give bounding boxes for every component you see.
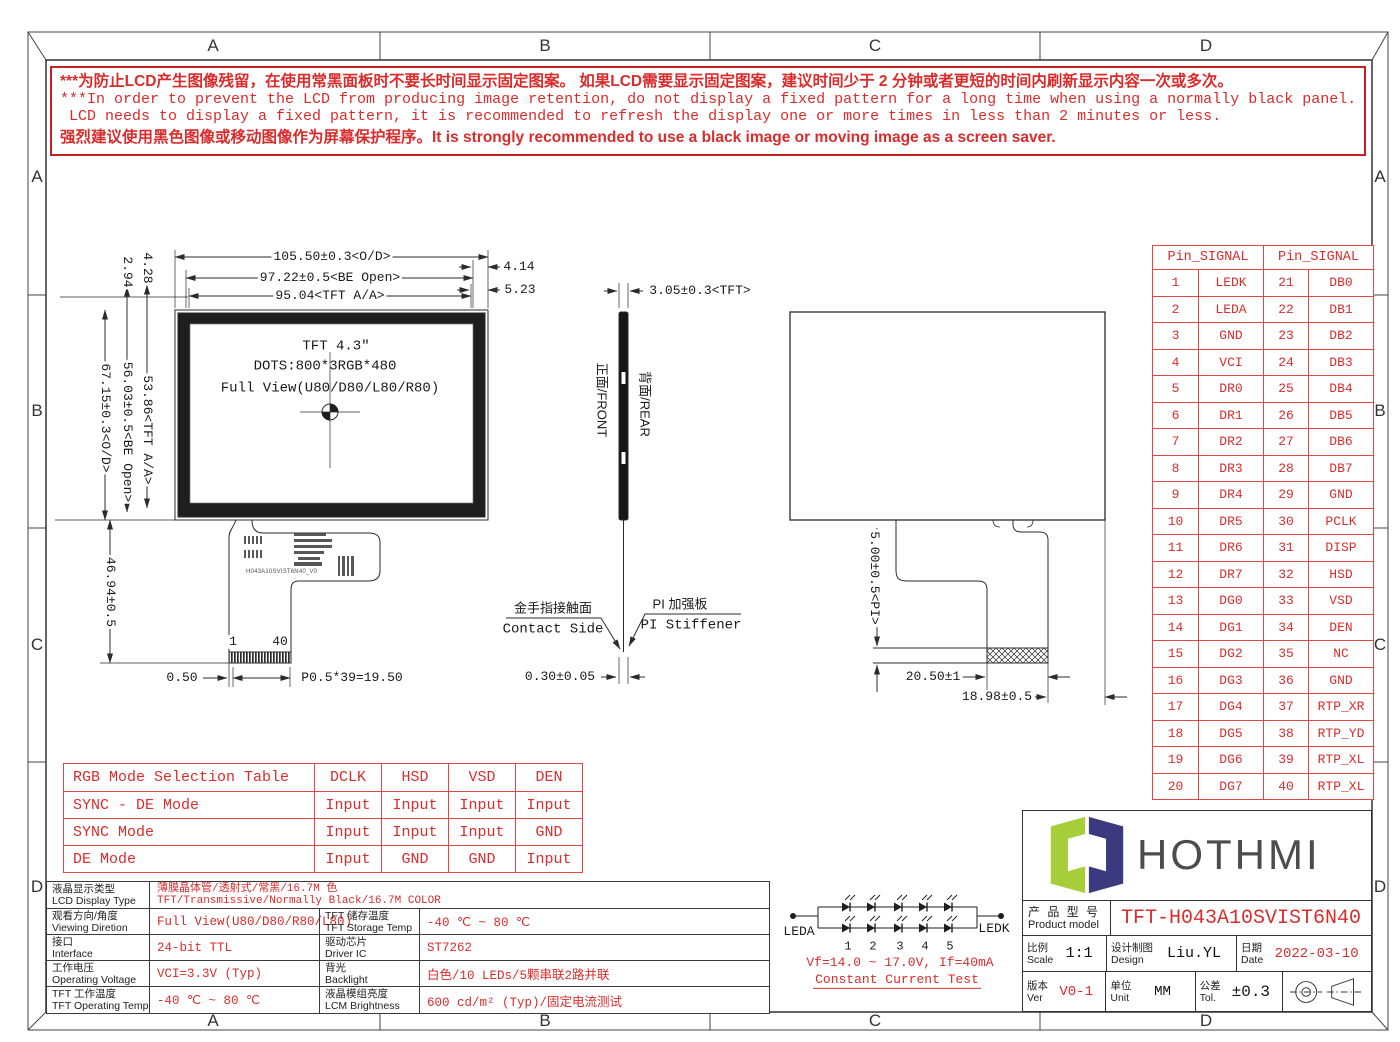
- pin-cell: 12: [1153, 561, 1198, 588]
- pin-cell: 16: [1153, 667, 1198, 694]
- led-circuit-lines: [791, 895, 1004, 933]
- spec-label: 接口Interface: [47, 934, 149, 960]
- pin-cell: 5: [1153, 375, 1198, 402]
- pin40-label: 40: [270, 635, 290, 649]
- pin-cell: DG1: [1198, 614, 1263, 641]
- dim-523: 5.23: [502, 283, 537, 297]
- pin-cell: DR5: [1198, 508, 1263, 535]
- product-model-label-en: Product model: [1028, 919, 1105, 931]
- dim-outline-width: 105.50±0.3<O/D>: [271, 250, 392, 264]
- spec-label-en: Viewing Diretion: [52, 922, 144, 934]
- pin-cell: DEN: [1308, 614, 1373, 641]
- fpc-part-marking: H043A10SVIST6N40_V0: [246, 569, 317, 575]
- spec-label: 液晶显示类型LCD Display Type: [47, 882, 149, 908]
- pin-cell: DR7: [1198, 561, 1263, 588]
- tolerance-cell: 公差Tol. ±0.3: [1195, 972, 1282, 1011]
- pin-cell: DG2: [1198, 640, 1263, 667]
- pin-cell: DB5: [1308, 402, 1373, 429]
- version-value: V0-1: [1051, 984, 1101, 1000]
- date-label-en: Date: [1241, 954, 1263, 966]
- pin-cell: DG5: [1198, 720, 1263, 747]
- date-cell: 日期Date 2022-03-10: [1236, 936, 1371, 971]
- design-label-en: Design: [1111, 954, 1153, 966]
- pin-cell: RTP_XL: [1308, 746, 1373, 773]
- spec-value: -40 ℃ ~ 80 ℃: [149, 986, 319, 1013]
- version-label-en: Ver: [1027, 992, 1048, 1004]
- rgb-cell: GND: [515, 818, 582, 845]
- zone-letter: B: [539, 36, 550, 56]
- spec-value: 600 cd/m² (Typ)/固定电流测试: [419, 986, 769, 1013]
- pin-cell: DISP: [1308, 534, 1373, 561]
- spec-label-cn: 工作电压: [52, 962, 144, 974]
- spec-label-en: Backlight: [325, 974, 414, 986]
- pin-cell: 29: [1263, 481, 1308, 508]
- third-angle-projection-icon: [1287, 974, 1367, 1010]
- zone-letter: C: [31, 635, 43, 655]
- rgb-header-cell: HSD: [381, 764, 448, 791]
- spec-label-cn: 接口: [52, 936, 144, 948]
- zone-letter: A: [31, 167, 42, 187]
- pin-cell: 13: [1153, 587, 1198, 614]
- pin-cell: RTP_YD: [1308, 720, 1373, 747]
- pin-cell: 38: [1263, 720, 1308, 747]
- rgb-cell: SYNC - DE Mode: [64, 791, 314, 818]
- rgb-cell: Input: [314, 818, 381, 845]
- pin-cell: 26: [1263, 402, 1308, 429]
- unit-cell: 单位Unit MM: [1105, 972, 1194, 1011]
- spec-value: 薄膜晶体管/透射式/常黑/16.7M 色TFT/Transmissive/Nor…: [149, 882, 769, 908]
- pin-cell: 20: [1153, 773, 1198, 800]
- warning-line: ***为防止LCD产生图像残留，在使用常黑面板时不要长时间显示固定图案。 如果L…: [60, 69, 1356, 91]
- version-cell: 版本Ver V0-1: [1023, 972, 1105, 1011]
- pin-cell: PCLK: [1308, 508, 1373, 535]
- zone-letter: D: [1200, 1011, 1212, 1031]
- contact-side-label-en: Contact Side: [501, 622, 606, 637]
- spec-value: Full View(U80/D80/R80/L80): [149, 908, 319, 934]
- spec-label: 观看方向/角度Viewing Diretion: [47, 908, 149, 934]
- dim-active-height: 53.86<TFT A/A>: [140, 373, 154, 486]
- dim-428: 4.28: [140, 250, 154, 285]
- spec-value: VCI=3.3V (Typ): [149, 960, 319, 986]
- pin-cell: 23: [1263, 322, 1308, 349]
- spec-label-en: TFT Operating Temp: [52, 1000, 144, 1012]
- pin-cell: 19: [1153, 746, 1198, 773]
- pin-table-header: Pin_SIGNAL: [1263, 246, 1373, 269]
- rgb-cell: DE Mode: [64, 845, 314, 872]
- pin-cell: DR1: [1198, 402, 1263, 429]
- spec-label: TFT 工作温度TFT Operating Temp: [47, 986, 149, 1013]
- pin-cell: 39: [1263, 746, 1308, 773]
- led-number: 5: [944, 940, 955, 953]
- pin-cell: DG6: [1198, 746, 1263, 773]
- spec-label-en: LCM Brightness: [325, 1000, 414, 1012]
- pin-cell: 27: [1263, 428, 1308, 455]
- spec-label-cn: 液晶模组亮度: [325, 988, 414, 1000]
- pin-cell: DB4: [1308, 375, 1373, 402]
- pin-cell: RTP_XR: [1308, 693, 1373, 720]
- logo-row: HOTHMI: [1023, 811, 1371, 900]
- pin-cell: 40: [1263, 773, 1308, 800]
- spec-value: ST7262: [419, 934, 769, 960]
- product-model-row: 产 品 型 号 Product model TFT-H043A10SVIST6N…: [1023, 900, 1371, 936]
- pin-cell: 8: [1153, 455, 1198, 482]
- led-anode-label: LEDA: [781, 925, 816, 939]
- projection-cell: [1282, 972, 1371, 1011]
- unit-label-cn: 单位: [1110, 980, 1131, 992]
- pin-cell: 17: [1153, 693, 1198, 720]
- rgb-header-cell: DCLK: [314, 764, 381, 791]
- zone-letter: D: [1200, 36, 1212, 56]
- warning-line: 强烈建议使用黑色图像或移动图像作为屏幕保护程序。It is strongly r…: [60, 125, 1356, 147]
- pin-cell: GND: [1308, 481, 1373, 508]
- rgb-cell: SYNC Mode: [64, 818, 314, 845]
- rgb-cell: Input: [515, 791, 582, 818]
- pin-cell: 36: [1263, 667, 1308, 694]
- spec-label-cn: TFT 储存温度: [325, 910, 414, 922]
- unit-label-en: Unit: [1110, 992, 1131, 1004]
- rgb-cell: GND: [448, 845, 515, 872]
- spec-value: 白色/10 LEDs/5颗串联2路并联: [419, 960, 769, 986]
- spec-label-en: Interface: [52, 948, 144, 960]
- pin-cell: 32: [1263, 561, 1308, 588]
- zone-letter: C: [869, 1011, 881, 1031]
- pin-cell: NC: [1308, 640, 1373, 667]
- led-cathode-label: LEDK: [976, 922, 1011, 936]
- spec-label-en: LCD Display Type: [52, 895, 144, 907]
- scale-label-en: Scale: [1027, 954, 1053, 966]
- warning-line: LCD needs to display a fixed pattern, it…: [60, 108, 1356, 125]
- zone-letter: B: [1374, 401, 1385, 421]
- pin-cell: 18: [1153, 720, 1198, 747]
- pin-cell: HSD: [1308, 561, 1373, 588]
- dim-active-width: 95.04<TFT A/A>: [273, 289, 386, 303]
- dim-bezel-width: 97.22±0.5<BE Open>: [258, 271, 402, 285]
- spec-label-cn: 观看方向/角度: [52, 910, 144, 922]
- rear-face-label: 背面/REAR: [637, 371, 656, 437]
- backlight-test-note: Constant Current Test: [813, 973, 981, 989]
- spec-label: TFT 储存温度TFT Storage Temp: [319, 908, 419, 934]
- date-label-cn: 日期: [1241, 942, 1263, 954]
- product-model-value: TFT-H043A10SVIST6N40: [1111, 901, 1371, 936]
- front-face-label: 正面/FRONT: [594, 363, 613, 437]
- dim-finger-pitch: P0.5*39=19.50: [299, 671, 404, 685]
- spec-label: 工作电压Operating Voltage: [47, 960, 149, 986]
- panel-view-label: Full View(U80/D80/L80/R80): [219, 381, 441, 396]
- spec-value: -40 ℃ ~ 80 ℃: [419, 908, 769, 934]
- pin-cell: GND: [1308, 667, 1373, 694]
- pin-cell: 2: [1153, 296, 1198, 323]
- panel-dots-label: DOTS:800*3RGB*480: [252, 359, 399, 374]
- designer-name: Liu.YL: [1156, 945, 1232, 962]
- brand-wordmark: HOTHMI: [1137, 834, 1321, 876]
- rgb-cell: Input: [515, 845, 582, 872]
- pin-cell: 30: [1263, 508, 1308, 535]
- pin-cell: 37: [1263, 693, 1308, 720]
- pin-cell: 3: [1153, 322, 1198, 349]
- dim-finger-margin: 0.50: [164, 671, 199, 685]
- design-cell: 设计制图Design Liu.YL: [1106, 936, 1236, 971]
- zone-letter: C: [1374, 635, 1386, 655]
- pin-cell: 10: [1153, 508, 1198, 535]
- pin-cell: 15: [1153, 640, 1198, 667]
- zone-letter: A: [207, 36, 218, 56]
- pin-cell: DB3: [1308, 349, 1373, 376]
- pin-cell: 9: [1153, 481, 1198, 508]
- spec-table: 液晶显示类型LCD Display Type薄膜晶体管/透射式/常黑/16.7M…: [46, 881, 770, 1014]
- rgb-cell: Input: [448, 818, 515, 845]
- dim-bezel-height: 56.03±0.5<BE Open>: [120, 360, 134, 504]
- rgb-cell: Input: [448, 791, 515, 818]
- tolerance-value: ±0.3: [1224, 983, 1278, 1001]
- zone-letter: B: [31, 401, 42, 421]
- dim-pi-stiffener: 5.00±0.5<PI>: [867, 529, 881, 627]
- pin-cell: 22: [1263, 296, 1308, 323]
- pin-cell: 11: [1153, 534, 1198, 561]
- rgb-table: RGB Mode Selection TableDCLKHSDVSDDENSYN…: [63, 763, 583, 873]
- pin-cell: DG0: [1198, 587, 1263, 614]
- pin-cell: LEDK: [1198, 269, 1263, 296]
- rgb-cell: Input: [381, 818, 448, 845]
- pin-cell: DG4: [1198, 693, 1263, 720]
- rgb-cell: Input: [381, 791, 448, 818]
- pin-cell: 31: [1263, 534, 1308, 561]
- title-block: HOTHMI 产 品 型 号 Product model TFT-H043A10…: [1022, 810, 1372, 1012]
- pin-cell: DB2: [1308, 322, 1373, 349]
- spec-label: 背光Backlight: [319, 960, 419, 986]
- spec-label-cn: 背光: [325, 962, 414, 974]
- zone-letter: A: [1374, 167, 1385, 187]
- led-number: 1: [842, 940, 853, 953]
- pin-cell: DR0: [1198, 375, 1263, 402]
- stiffener-label-cn: PI 加强板: [653, 594, 708, 613]
- dim-edge-offset: 18.98±0.5: [960, 690, 1034, 704]
- rgb-cell: Input: [314, 845, 381, 872]
- dim-outline-height: 67.15±0.3<O/D>: [98, 361, 112, 474]
- dim-fpc-thickness: 0.30±0.05: [523, 670, 597, 684]
- pin-cell: VCI: [1198, 349, 1263, 376]
- spec-label-en: Driver IC: [325, 948, 414, 960]
- pin1-label: 1: [227, 635, 239, 649]
- pin-cell: 1: [1153, 269, 1198, 296]
- stiffener-label-en: PI Stiffener: [639, 618, 744, 633]
- dim-finger-width: 20.50±1: [904, 670, 963, 684]
- datasheet-drawing: AAAABBBBCCCCDDDD ***为防止LCD产生图像残留，在使用常黑面板…: [0, 0, 1400, 1042]
- spec-label: 液晶模组亮度LCM Brightness: [319, 986, 419, 1013]
- image-retention-warning: ***为防止LCD产生图像残留，在使用常黑面板时不要长时间显示固定图案。 如果L…: [50, 66, 1366, 156]
- spec-value-line: TFT/Transmissive/Normally Black/16.7M CO…: [157, 895, 441, 907]
- pin-table: Pin_SIGNALPin_SIGNAL1LEDK21DB02LEDA22DB1…: [1152, 245, 1374, 800]
- spec-value-line: 薄膜晶体管/透射式/常黑/16.7M 色: [157, 883, 337, 895]
- pin-cell: DR4: [1198, 481, 1263, 508]
- tolerance-label-cn: 公差: [1200, 980, 1221, 992]
- pin-cell: 33: [1263, 587, 1308, 614]
- pin-cell: RTP_XL: [1308, 773, 1373, 800]
- zone-letter: D: [1374, 877, 1386, 897]
- version-label-cn: 版本: [1027, 980, 1048, 992]
- pin-table-header: Pin_SIGNAL: [1153, 246, 1263, 269]
- dim-thickness: 3.05±0.3<TFT>: [647, 284, 752, 298]
- pin-cell: 25: [1263, 375, 1308, 402]
- pin-cell: LEDA: [1198, 296, 1263, 323]
- rgb-header-cell: VSD: [448, 764, 515, 791]
- pin-cell: 7: [1153, 428, 1198, 455]
- led-number: 4: [919, 940, 930, 953]
- pin-cell: 34: [1263, 614, 1308, 641]
- backlight-spec: Vf=14.0 ~ 17.0V, If=40mA: [804, 956, 995, 970]
- panel-size-label: TFT 4.3″: [300, 339, 371, 354]
- spec-value: 24-bit TTL: [149, 934, 319, 960]
- pin-cell: DB7: [1308, 455, 1373, 482]
- pin-cell: 35: [1263, 640, 1308, 667]
- spec-label-cn: TFT 工作温度: [52, 988, 144, 1000]
- warning-line: ***In order to prevent the LCD from prod…: [60, 91, 1356, 108]
- pin-cell: 14: [1153, 614, 1198, 641]
- pin-cell: DR3: [1198, 455, 1263, 482]
- spec-label-en: TFT Storage Temp: [325, 922, 414, 934]
- zone-letter: A: [207, 1011, 218, 1031]
- rgb-cell: GND: [381, 845, 448, 872]
- pin-cell: 24: [1263, 349, 1308, 376]
- scale-value: 1:1: [1056, 945, 1102, 962]
- date-value: 2022-03-10: [1266, 946, 1367, 962]
- pin-cell: VSD: [1308, 587, 1373, 614]
- pin-cell: DG3: [1198, 667, 1263, 694]
- unit-value: MM: [1134, 984, 1190, 1000]
- rgb-header-cell: DEN: [515, 764, 582, 791]
- pin-cell: DB0: [1308, 269, 1373, 296]
- pin-cell: 21: [1263, 269, 1308, 296]
- pin-cell: DB1: [1308, 296, 1373, 323]
- pin-cell: DB6: [1308, 428, 1373, 455]
- pin-cell: 6: [1153, 402, 1198, 429]
- zone-letter: C: [869, 36, 881, 56]
- scale-cell: 比例Scale 1:1: [1023, 936, 1106, 971]
- rgb-header-cell: RGB Mode Selection Table: [64, 764, 314, 791]
- spec-label-cn: 液晶显示类型: [52, 883, 144, 895]
- led-number: 2: [867, 940, 878, 953]
- scale-label-cn: 比例: [1027, 942, 1053, 954]
- tolerance-label-en: Tol.: [1200, 992, 1221, 1004]
- pin-cell: DR2: [1198, 428, 1263, 455]
- hothmi-logo-icon: [1045, 815, 1129, 895]
- rgb-cell: Input: [314, 791, 381, 818]
- dim-tail-length: 46.94±0.5: [103, 555, 117, 629]
- dim-294: 2.94: [120, 254, 134, 289]
- zone-letter: D: [31, 877, 43, 897]
- spec-label-en: Operating Voltage: [52, 974, 144, 986]
- contact-side-label-cn: 金手指接触面: [514, 598, 592, 617]
- design-label-cn: 设计制图: [1111, 942, 1153, 954]
- led-number: 3: [894, 940, 905, 953]
- pin-cell: 28: [1263, 455, 1308, 482]
- product-model-label-cn: 产 品 型 号: [1028, 906, 1105, 919]
- spec-label-cn: 驱动芯片: [325, 936, 414, 948]
- pin-cell: DG7: [1198, 773, 1263, 800]
- pin-cell: DR6: [1198, 534, 1263, 561]
- spec-label: 驱动芯片Driver IC: [319, 934, 419, 960]
- dim-414: 4.14: [501, 260, 536, 274]
- zone-letter: B: [539, 1011, 550, 1031]
- pin-cell: GND: [1198, 322, 1263, 349]
- pin-cell: 4: [1153, 349, 1198, 376]
